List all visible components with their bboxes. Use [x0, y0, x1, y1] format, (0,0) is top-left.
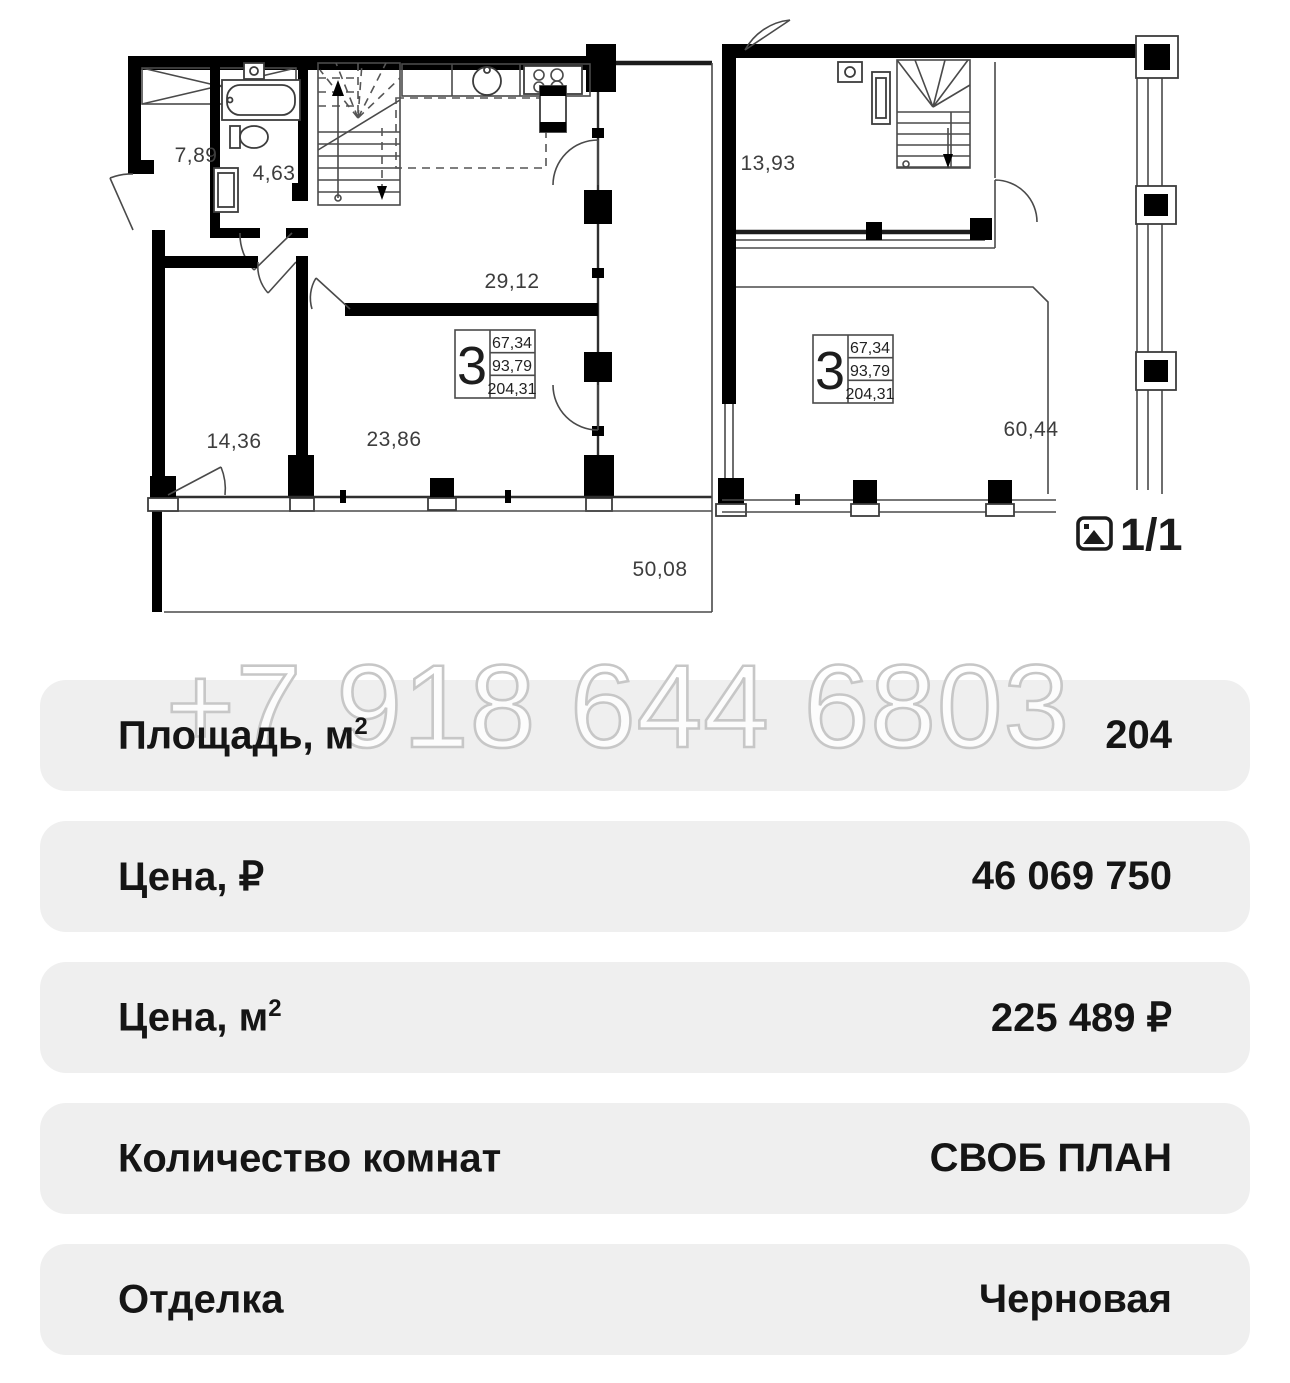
row-rooms-label: Количество комнат [118, 1136, 501, 1181]
gallery-counter-text: 1/1 [1120, 509, 1183, 560]
row-price-value: 46 069 750 [972, 854, 1172, 899]
row-area: Площадь, м2 204 [40, 680, 1250, 791]
row-label-text: Количество комнат [118, 1136, 501, 1180]
row-label-sup: 2 [268, 995, 281, 1022]
badge-area-2: 93,79 [492, 358, 532, 375]
row-price-label: Цена, ₽ [118, 854, 264, 900]
room-area-label: 7,89 [175, 144, 218, 167]
badge-area-3: 204,31 [488, 381, 537, 398]
row-rooms: Количество комнат СВОБ ПЛАН [40, 1103, 1250, 1214]
floor-plan-image[interactable]: 3 67,34 93,79 204,31 7,89 4,63 29,12 14,… [0, 0, 1290, 660]
badge-rooms-number: 3 [815, 341, 845, 401]
details-table: Площадь, м2 204 Цена, ₽ 46 069 750 Цена,… [40, 680, 1250, 1383]
area-badge-left: 3 67,34 93,79 204,31 [455, 330, 537, 398]
badge-area-2: 93,79 [850, 363, 890, 380]
row-finishing-label: Отделка [118, 1277, 284, 1322]
floor-plan-right: 3 67,34 93,79 204,31 13,93 60,44 [716, 20, 1178, 516]
listing-card: 3 67,34 93,79 204,31 7,89 4,63 29,12 14,… [0, 0, 1290, 1383]
room-area-label: 14,36 [206, 430, 261, 453]
badge-rooms-number: 3 [457, 336, 487, 396]
badge-area-3: 204,31 [846, 386, 895, 403]
gallery-counter[interactable]: 1/1 [1056, 494, 1256, 566]
row-price-per-m2-value: 225 489 ₽ [991, 995, 1172, 1041]
area-badge-right: 3 67,34 93,79 204,31 [813, 335, 895, 403]
room-area-label: 60,44 [1003, 418, 1058, 441]
badge-area-1: 67,34 [492, 335, 532, 352]
row-price: Цена, ₽ 46 069 750 [40, 821, 1250, 932]
room-area-label: 4,63 [253, 162, 296, 185]
row-area-value: 204 [1105, 713, 1172, 758]
room-area-label: 13,93 [740, 152, 795, 175]
badge-area-1: 67,34 [850, 340, 890, 357]
row-price-per-m2: Цена, м2 225 489 ₽ [40, 962, 1250, 1073]
row-area-label: Площадь, м2 [118, 713, 368, 758]
row-price-per-m2-label: Цена, м2 [118, 995, 282, 1040]
row-label-sup: 2 [354, 713, 367, 740]
room-area-label: 50,08 [632, 558, 687, 581]
room-area-label: 29,12 [484, 270, 539, 293]
room-area-label: 23,86 [366, 428, 421, 451]
row-rooms-value: СВОБ ПЛАН [930, 1136, 1172, 1181]
floor-plan-left: 3 67,34 93,79 204,31 7,89 4,63 29,12 14,… [110, 44, 712, 612]
row-label-text: Цена, м [118, 995, 268, 1039]
row-finishing: Отделка Черновая [40, 1244, 1250, 1355]
row-label-text: Площадь, м [118, 713, 354, 757]
row-label-text: Цена, ₽ [118, 855, 264, 899]
row-finishing-value: Черновая [979, 1277, 1172, 1322]
row-label-text: Отделка [118, 1277, 284, 1321]
